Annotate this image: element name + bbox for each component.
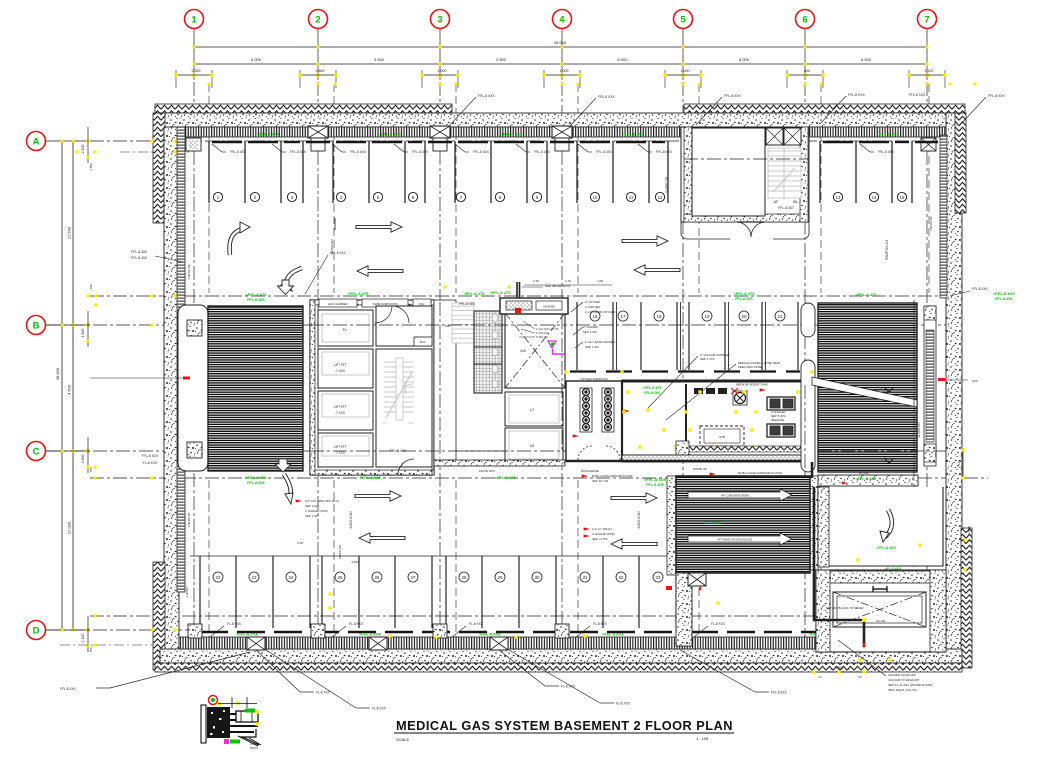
svg-text:1 800: 1 800: [81, 329, 85, 338]
svg-text:2 100: 2 100: [925, 69, 934, 73]
svg-text:2" OXYGEN: 2" OXYGEN: [585, 300, 600, 304]
svg-text:4 800: 4 800: [835, 666, 843, 670]
svg-text:CEGR-BD: CEGR-BD: [543, 305, 555, 309]
svg-text:FL-8 XXX: FL-8 XXX: [711, 622, 726, 626]
svg-text:FFL-8 4XX: FFL-8 4XX: [656, 150, 673, 154]
svg-text:6 000: 6 000: [251, 57, 262, 62]
svg-text:≈FFL-8 475: ≈FFL-8 475: [246, 475, 268, 480]
svg-text:1 NCRX 2%: 1 NCRX 2%: [187, 512, 191, 528]
svg-text:1-1/2" LIQUID OXYGEN: 1-1/2" LIQUID OXYGEN: [585, 310, 615, 314]
svg-text:FFL-8L 8XX: FFL-8L 8XX: [479, 469, 495, 473]
svg-text:3: 3: [437, 15, 442, 26]
svg-text:≈FFL-8 4XX: ≈FFL-8 4XX: [703, 521, 722, 525]
svg-text:2 600: 2 600: [81, 455, 85, 464]
svg-text:SEP. +3 753: SEP. +3 753: [592, 537, 608, 541]
svg-text:750: 750: [89, 467, 93, 472]
svg-text:L8: L8: [530, 444, 534, 448]
svg-text:2" EXHLED (PAD): 2" EXHLED (PAD): [305, 509, 328, 513]
svg-text:≈FFL-8 475: ≈FFL-8 475: [643, 386, 662, 390]
svg-text:1/2" OXY 42DN-OFF (PLC): 1/2" OXY 42DN-OFF (PLC): [305, 499, 339, 503]
svg-text:SEP. 4D 7A3: SEP. 4D 7A3: [592, 479, 609, 483]
svg-text:SEE 2BLNEND-04: SEE 2BLNEND-04: [545, 284, 570, 288]
svg-text:≈FFL-8 4XX: ≈FFL-8 4XX: [622, 132, 644, 137]
svg-text:-7 XXX: -7 XXX: [335, 451, 346, 455]
svg-text:LIFT PIT: LIFT PIT: [334, 405, 346, 409]
svg-text:FFL-8 XXX: FFL-8 XXX: [142, 454, 160, 458]
svg-text:MCL: MCL: [420, 340, 426, 344]
svg-text:38 000: 38 000: [55, 367, 60, 380]
svg-text:DN: DN: [409, 421, 413, 425]
svg-text:8 000: 8 000: [739, 57, 750, 62]
svg-text:OXYGEN MANIFOLD: OXYGEN MANIFOLD: [580, 377, 607, 381]
svg-text:≈FFL-8 4XX: ≈FFL-8 4XX: [236, 632, 258, 637]
svg-text:FFL-8 4XX: FFL-8 4XX: [878, 150, 895, 154]
svg-text:B: B: [33, 321, 40, 332]
svg-text:≈FFL-8 475: ≈FFL-8 475: [734, 291, 756, 296]
svg-text:21: 21: [777, 314, 783, 319]
svg-text:4 600: 4 600: [67, 384, 72, 395]
svg-text:MEDIUM SEDER TANK: MEDIUM SEDER TANK: [736, 383, 768, 387]
svg-text:KEEP-VRAI VGSE: KEEP-VRAI VGSE: [738, 365, 762, 369]
svg-text:2-4" GY 205-GY: 2-4" GY 205-GY: [592, 527, 612, 531]
svg-text:A: A: [33, 137, 40, 148]
svg-text:(BSC DHLXL 14C-7P): (BSC DHLXL 14C-7P): [888, 688, 917, 692]
svg-text:1.05: 1.05: [597, 279, 603, 283]
svg-text:SEP. 2 XD: SEP. 2 XD: [305, 514, 318, 518]
svg-text:L7: L7: [530, 408, 534, 412]
svg-text:17: 17: [620, 314, 626, 319]
svg-text:FFL-8 400: FFL-8 400: [459, 302, 475, 306]
svg-text:2 500: 2 500: [496, 57, 507, 62]
svg-text:SEP. 2 100: SEP. 2 100: [305, 504, 319, 508]
svg-text:SLOPE DN: SLOPE DN: [665, 176, 669, 193]
svg-text:FFL-8 XXX: FFL-8 XXX: [771, 691, 788, 695]
svg-text:XXXX: XXXX: [250, 746, 258, 750]
svg-text:FFL-8 4XX: FFL-8 4XX: [534, 150, 551, 154]
svg-text:FFL-8 XXX: FFL-8 XXX: [724, 94, 742, 98]
svg-text:23: 23: [251, 575, 257, 580]
svg-text:3" EXHLED (PAD): 3" EXHLED (PAD): [592, 532, 615, 536]
svg-text:FL-8 XXX: FL-8 XXX: [143, 461, 158, 465]
svg-text:4: 4: [559, 15, 565, 26]
svg-text:RAMP UP: RAMP UP: [693, 467, 707, 471]
svg-text:≈FFL-8 475: ≈FFL-8 475: [495, 475, 517, 480]
svg-text:FFL-8 XXX: FFL-8 XXX: [598, 95, 616, 99]
svg-text:5: 5: [680, 15, 686, 26]
svg-text:4FT CONCRETE KERB: 4FT CONCRETE KERB: [721, 494, 749, 498]
svg-text:≈FFL-8 4XX: ≈FFL-8 4XX: [993, 291, 1015, 296]
svg-text:GO 2P: GO 2P: [876, 619, 885, 623]
svg-text:SLOPE DN: SLOPE DN: [338, 545, 342, 559]
svg-text:FFL-8 XXX: FFL-8 XXX: [848, 93, 866, 97]
svg-text:27: 27: [410, 575, 416, 580]
svg-text:FL-8 XXX: FL-8 XXX: [316, 691, 331, 695]
svg-text:FFL-8 XXX: FFL-8 XXX: [60, 687, 77, 691]
svg-text:2.35: 2.35: [297, 541, 303, 545]
svg-text:-7 XXX: -7 XXX: [335, 369, 346, 373]
svg-text:FL-8 XXX: FL-8 XXX: [469, 622, 484, 626]
svg-text:16: 16: [592, 314, 598, 319]
svg-text:RAMP DN 1:8: RAMP DN 1:8: [885, 240, 889, 260]
svg-text:DN: DN: [793, 200, 798, 204]
svg-text:1 5XX: 1 5XX: [957, 460, 961, 468]
svg-text:FFL-8 4XX: FFL-8 4XX: [247, 481, 265, 485]
svg-text:24: 24: [288, 575, 294, 580]
svg-text:≈FFL-8 4XX: ≈FFL-8 4XX: [359, 632, 381, 637]
svg-text:1 000: 1 000: [560, 69, 569, 73]
svg-text:700: 700: [89, 284, 93, 289]
svg-text:AISLE 6.0M: AISLE 6.0M: [637, 511, 641, 528]
svg-text:1 000: 1 000: [681, 69, 690, 73]
svg-text:FFL-8 4XX: FFL-8 4XX: [646, 483, 664, 487]
svg-text:FFL-8 XXX: FFL-8 XXX: [478, 94, 496, 98]
svg-text:26: 26: [374, 575, 380, 580]
svg-text:DISCHARGE: DISCHARGE: [581, 469, 599, 473]
svg-text:≈FFL-8 475: ≈FFL-8 475: [856, 292, 878, 297]
svg-text:3 600: 3 600: [374, 57, 385, 62]
svg-text:EHS CHAMBER: EHS CHAMBER: [328, 302, 347, 306]
svg-text:18: 18: [656, 314, 662, 319]
svg-text:6: 6: [802, 15, 807, 26]
svg-text:C: C: [33, 447, 40, 458]
svg-text:1 : 105: 1 : 105: [696, 736, 709, 741]
svg-text:FFL-8 4XX: FFL-8 4XX: [995, 297, 1013, 301]
svg-text:33: 33: [655, 575, 661, 580]
svg-text:RUB LACHIN GROUND FLOOR: RUB LACHIN GROUND FLOOR: [738, 471, 782, 475]
svg-text:SLOPE DN: SLOPE DN: [917, 422, 921, 437]
svg-text:XX: XX: [858, 675, 862, 679]
svg-text:LIFT PIT: LIFT PIT: [334, 363, 346, 367]
svg-text:FFL-8 4XX: FFL-8 4XX: [412, 150, 429, 154]
svg-text:14: 14: [872, 195, 877, 200]
svg-text:3" BG GV: 3" BG GV: [536, 335, 548, 339]
svg-text:FFL-8 4XX: FFL-8 4XX: [735, 297, 753, 301]
svg-text:12 600: 12 600: [67, 226, 72, 239]
svg-text:2 100: 2 100: [81, 145, 85, 154]
svg-text:31: 31: [582, 575, 588, 580]
svg-text:15: 15: [900, 195, 905, 200]
svg-text:1: 1: [191, 15, 197, 26]
svg-text:19: 19: [704, 314, 710, 319]
svg-text:FFL-8 400: FFL-8 400: [131, 256, 147, 260]
svg-text:FFL-8 XXX: FFL-8 XXX: [909, 93, 927, 97]
svg-text:SEP. 4D 753 GAS TO SEDER: SEP. 4D 753 GAS TO SEDER: [826, 606, 863, 610]
svg-text:800: 800: [804, 69, 810, 73]
svg-text:≈FFL-8 4XX: ≈FFL-8 4XX: [257, 132, 279, 137]
svg-text:FFL-8 4XX: FFL-8 4XX: [350, 150, 367, 154]
svg-text:STB: STB: [719, 435, 725, 439]
svg-text:1 NCRX: 1 NCRX: [185, 587, 189, 597]
svg-text:SEP. 1 XXX: SEP. 1 XXX: [700, 357, 715, 361]
svg-text:22: 22: [215, 575, 221, 580]
svg-text:AISLE: AISLE: [967, 526, 971, 535]
svg-text:4FT RAMP UP GROUND FLR: 4FT RAMP UP GROUND FLR: [718, 538, 753, 542]
svg-text:32: 32: [618, 575, 624, 580]
svg-text:25: 25: [337, 575, 343, 580]
svg-text:20: 20: [741, 314, 747, 319]
svg-text:XX: XX: [818, 675, 822, 679]
svg-text:≈FFL-8 475: ≈FFL-8 475: [348, 291, 370, 296]
svg-text:FFL-8 4XX: FFL-8 4XX: [596, 150, 613, 154]
svg-text:12 000: 12 000: [67, 521, 72, 534]
svg-text:≈FFL-8 475: ≈FFL-8 475: [464, 291, 486, 296]
svg-text:FL: FL: [343, 328, 347, 332]
svg-text:10: 10: [593, 195, 598, 200]
svg-text:≈FFL-8 4XX: ≈FFL-8 4XX: [501, 132, 523, 137]
svg-text:UP: UP: [774, 200, 778, 204]
svg-text:VACUUM TO EXHAUST: VACUUM TO EXHAUST: [888, 678, 920, 682]
svg-text:MCL: MCL: [419, 302, 425, 306]
svg-text:4 700: 4 700: [351, 560, 359, 564]
svg-text:≈FFL-8 4XX: ≈FFL-8 4XX: [856, 477, 877, 481]
svg-text:≈FFL-8 475: ≈FFL-8 475: [360, 475, 382, 480]
svg-text:SEP. 2 343: SEP. 2 343: [585, 345, 599, 349]
svg-text:2.35: 2.35: [533, 279, 539, 283]
svg-text:FFL-8 XXX: FFL-8 XXX: [972, 287, 989, 291]
svg-text:FL-8 XXX: FL-8 XXX: [372, 707, 387, 711]
svg-text:FL-8 XXX: FL-8 XXX: [593, 622, 608, 626]
svg-text:THIRD PUMP ROOM: THIRD PUMP ROOM: [373, 302, 398, 306]
svg-text:FFL-8 4XX: FFL-8 4XX: [290, 150, 307, 154]
svg-text:RUB LACHIN GROUND FLOOR: RUB LACHIN GROUND FLOOR: [592, 474, 633, 478]
svg-text:2 300: 2 300: [192, 69, 201, 73]
svg-text:7: 7: [924, 15, 929, 26]
svg-text:4X8: 4X8: [520, 349, 526, 353]
svg-text:FFL-8 347: FFL-8 347: [778, 206, 794, 210]
svg-text:XXX: XXX: [972, 379, 978, 383]
svg-text:4" CENTER: 4" CENTER: [585, 305, 600, 309]
svg-text:SEP. 2 343: SEP. 2 343: [583, 330, 597, 334]
svg-text:6 000: 6 000: [861, 57, 872, 62]
svg-text:≈FFL-8 4XX: ≈FFL-8 4XX: [644, 477, 666, 482]
svg-text:≈FFL-8 4XX: ≈FFL-8 4XX: [479, 632, 501, 637]
svg-text:FFL-8 400: FFL-8 400: [131, 250, 147, 254]
svg-text:FFL-8 4XX: FFL-8 4XX: [644, 391, 660, 395]
svg-text:FFL-8 4XX: FFL-8 4XX: [473, 150, 490, 154]
svg-text:≈FFL-8 4XX: ≈FFL-8 4XX: [877, 132, 899, 137]
svg-text:1 500: 1 500: [89, 163, 93, 171]
svg-text:CHASED SLOW-OFF: CHASED SLOW-OFF: [888, 673, 916, 677]
svg-text:≈FFL-8 475: ≈FFL-8 475: [490, 290, 512, 295]
svg-text:1 NCRX 2%: 1 NCRX 2%: [929, 216, 933, 232]
svg-text:SCALE: SCALE: [396, 737, 409, 742]
svg-text:D: D: [33, 626, 40, 637]
svg-text:≈FFL-8 475: ≈FFL-8 475: [246, 292, 268, 297]
svg-text:1 NCRX 2%: 1 NCRX 2%: [187, 264, 191, 280]
svg-text:FFL-8 4XX: FFL-8 4XX: [247, 298, 265, 302]
svg-text:FL-8 XXX: FL-8 XXX: [227, 622, 242, 626]
svg-text:8 000: 8 000: [617, 57, 628, 62]
svg-text:1 000: 1 000: [438, 69, 447, 73]
svg-text:30: 30: [534, 575, 540, 580]
svg-text:MEDICAL GAS SYSTEM BASEMENT 2: MEDICAL GAS SYSTEM BASEMENT 2 FLOOR PLAN: [396, 718, 733, 733]
svg-text:28: 28: [461, 575, 467, 580]
svg-text:750: 750: [89, 647, 93, 652]
svg-text:12: 12: [658, 195, 663, 200]
svg-text:≈FFL-8 4XX: ≈FFL-8 4XX: [876, 546, 896, 550]
svg-text:FL-8 XXX: FL-8 XXX: [616, 702, 631, 706]
svg-text:29: 29: [497, 575, 503, 580]
svg-text:CBL: CBL: [445, 324, 451, 328]
svg-text:3" CHASED: 3" CHASED: [583, 325, 598, 329]
svg-text:1.70: 1.70: [565, 279, 571, 283]
svg-text:≈FFL-8 4XX: ≈FFL-8 4XX: [602, 632, 624, 637]
svg-text:FFL-8 XXX: FFL-8 XXX: [988, 94, 1006, 98]
svg-text:HOTEL: HOTEL: [859, 471, 869, 475]
svg-text:2: 2: [315, 15, 320, 26]
svg-text:1 800: 1 800: [316, 69, 325, 73]
svg-text:(BLILACE): (BLILACE): [771, 418, 784, 422]
svg-text:FFL-8 4XX: FFL-8 4XX: [230, 150, 247, 154]
svg-text:FL-8 XXX: FL-8 XXX: [349, 622, 364, 626]
svg-text:13: 13: [836, 195, 841, 200]
svg-text:UP: UP: [382, 421, 386, 425]
svg-text:-7 XXX: -7 XXX: [335, 411, 346, 415]
svg-text:2 100: 2 100: [81, 634, 85, 643]
svg-text:AISLE 6.0M: AISLE 6.0M: [349, 511, 353, 528]
svg-text:LIFT PIT: LIFT PIT: [334, 445, 346, 449]
svg-text:SEP. FL-41 XXX (2NCRD FLOOR): SEP. FL-41 XXX (2NCRD FLOOR): [888, 683, 933, 687]
svg-text:≈FFL-8 4XX: ≈FFL-8 4XX: [379, 132, 401, 137]
svg-text:45 000: 45 000: [554, 40, 567, 45]
svg-text:11: 11: [629, 195, 634, 200]
svg-text:FFL-8 XXX: FFL-8 XXX: [330, 251, 347, 255]
svg-text:1-1/2" LIQUID CHASED: 1-1/2" LIQUID CHASED: [585, 340, 615, 344]
